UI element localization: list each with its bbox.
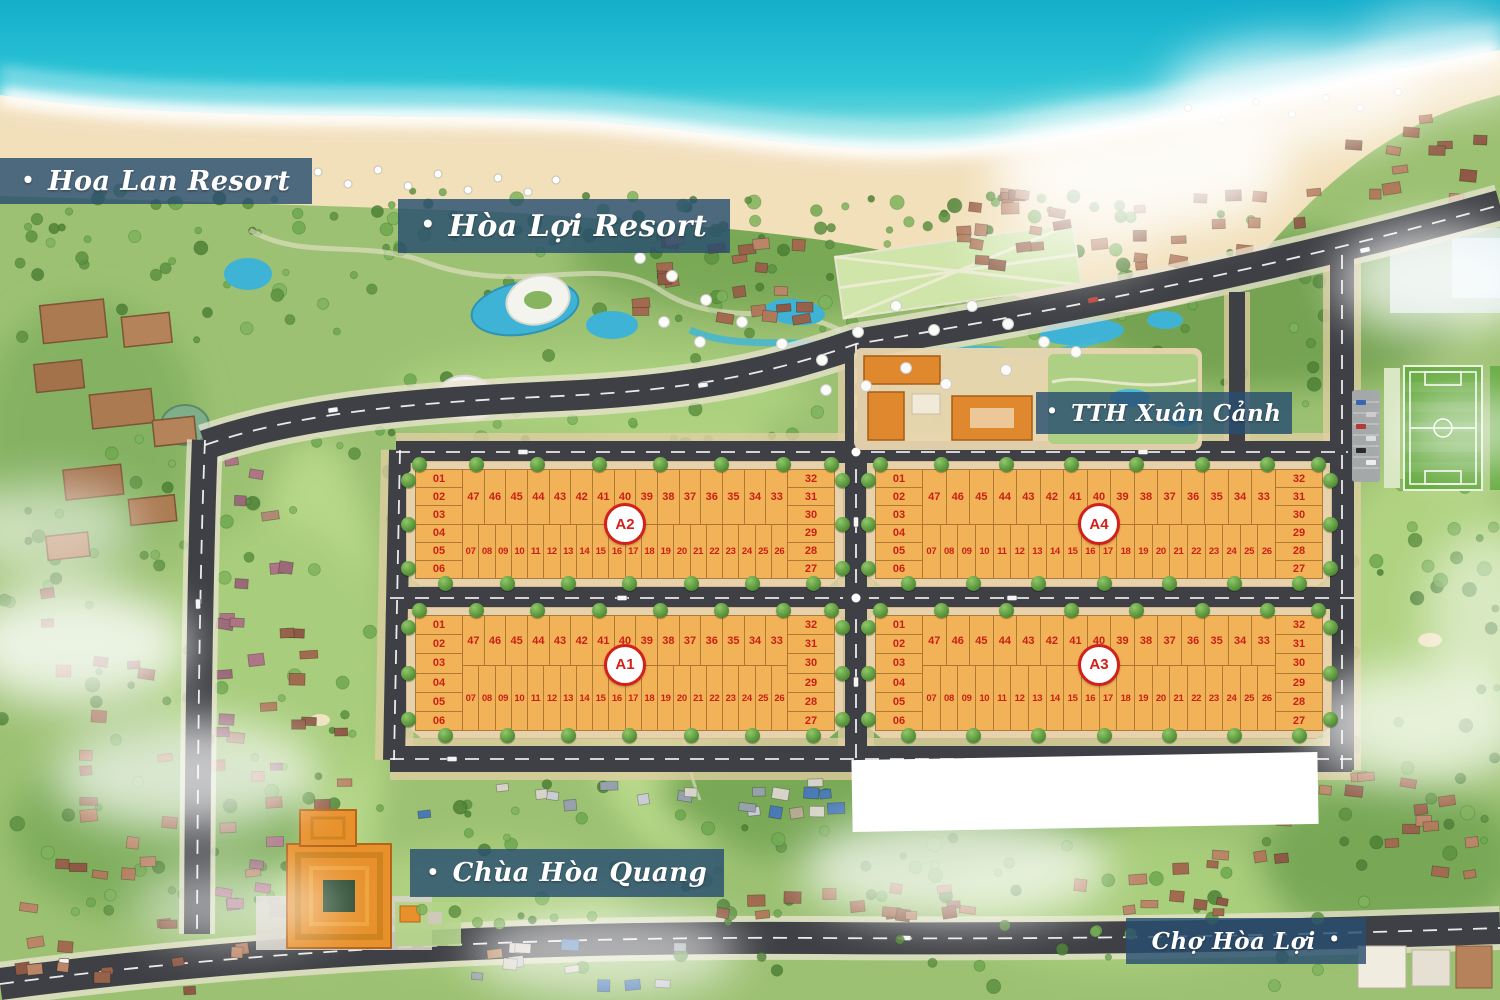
- lot-number: 04: [893, 677, 905, 689]
- lot-A2-34: 34: [745, 470, 767, 524]
- block-a4: 0102030405064746454443424140393837363534…: [866, 461, 1332, 587]
- lot-number: 47: [928, 635, 940, 647]
- lot-number: 03: [433, 509, 445, 521]
- lot-A2-04: 04: [416, 525, 462, 543]
- tree-icon: [1323, 561, 1338, 576]
- lot-number: 40: [619, 491, 631, 503]
- lot-A4-46: 46: [947, 470, 971, 524]
- lot-number: 29: [805, 527, 817, 539]
- lot-number: 39: [1116, 491, 1128, 503]
- tree-icon: [401, 473, 416, 488]
- lot-A2-22: 22: [707, 525, 723, 578]
- lot-A3-01: 01: [876, 616, 922, 635]
- lot-A2-03: 03: [416, 506, 462, 524]
- tree-icon: [1323, 712, 1338, 727]
- tree-icon: [412, 457, 427, 472]
- lot-number: 27: [1293, 563, 1305, 575]
- lot-number: 26: [1262, 546, 1272, 557]
- lot-A1-24: 24: [739, 666, 755, 730]
- lot-number: 18: [1121, 546, 1131, 557]
- lot-number: 17: [628, 546, 638, 557]
- tree-icon: [1311, 457, 1326, 472]
- banner-cho-hoa-loi: Chợ Hòa Lợi •: [1126, 918, 1366, 964]
- lot-A3-08: 08: [941, 666, 959, 730]
- lot-number: 23: [1209, 693, 1219, 704]
- lot-A3-20: 20: [1153, 666, 1171, 730]
- lot-number: 35: [727, 635, 739, 647]
- lot-number: 21: [693, 546, 703, 557]
- tree-icon: [684, 728, 699, 743]
- lot-number: 30: [805, 657, 817, 669]
- lot-number: 08: [482, 693, 492, 704]
- lot-A2-35: 35: [723, 470, 745, 524]
- lot-number: 43: [1022, 635, 1034, 647]
- lot-A3-03: 03: [876, 654, 922, 673]
- lot-A4-20: 20: [1153, 525, 1171, 578]
- lot-number: 11: [531, 693, 540, 704]
- lot-number: 18: [644, 546, 654, 557]
- banner-hoa-loi-resort: • Hòa Lợi Resort: [398, 199, 730, 253]
- tree-icon: [653, 603, 668, 618]
- lot-A3-24: 24: [1223, 666, 1241, 730]
- lot-A3-02: 02: [876, 635, 922, 654]
- lot-number: 38: [662, 491, 674, 503]
- lot-number: 34: [1234, 491, 1246, 503]
- lot-number: 09: [498, 693, 508, 704]
- lot-number: 09: [498, 546, 508, 557]
- lot-A4-21: 21: [1170, 525, 1188, 578]
- lot-number: 15: [1068, 693, 1078, 704]
- lot-number: 43: [554, 635, 566, 647]
- lot-number: 33: [1258, 491, 1270, 503]
- lot-number: 16: [1085, 693, 1095, 704]
- lot-number: 32: [805, 619, 817, 631]
- lot-number: 41: [1069, 635, 1081, 647]
- lot-A1-06: 06: [416, 712, 462, 730]
- lot-number: 21: [693, 693, 703, 704]
- lot-A4-33: 33: [1252, 470, 1275, 524]
- block-a3: 0102030405064746454443424140393837363534…: [866, 607, 1332, 739]
- lot-number: 42: [1046, 491, 1058, 503]
- lot-A4-42: 42: [1041, 470, 1065, 524]
- lot-A1-34: 34: [745, 616, 767, 665]
- tree-icon: [1129, 457, 1144, 472]
- lot-number: 31: [1293, 491, 1305, 503]
- lot-A3-46: 46: [947, 616, 971, 665]
- lot-A4-01: 01: [876, 470, 922, 488]
- tree-icon: [714, 603, 729, 618]
- lot-A3-12: 12: [1011, 666, 1029, 730]
- lot-number: 32: [1293, 473, 1305, 485]
- lot-A3-30: 30: [1276, 654, 1322, 673]
- lot-number: 27: [805, 715, 817, 727]
- lot-number: 42: [1046, 635, 1058, 647]
- lot-number: 12: [547, 693, 557, 704]
- lot-number: 11: [997, 693, 1006, 704]
- lot-A1-45: 45: [506, 616, 528, 665]
- block-badge-a4: A4: [1078, 503, 1120, 545]
- lot-A3-04: 04: [876, 674, 922, 693]
- lot-number: 12: [1015, 546, 1025, 557]
- lot-number: 41: [1069, 491, 1081, 503]
- lot-A3-19: 19: [1135, 666, 1153, 730]
- lot-number: 02: [893, 491, 905, 503]
- lot-A4-28: 28: [1276, 543, 1322, 561]
- lot-number: 02: [433, 491, 445, 503]
- lot-A2-43: 43: [550, 470, 572, 524]
- banner-bullet: •: [1046, 402, 1058, 422]
- lot-A1-18: 18: [642, 666, 658, 730]
- lot-number: 29: [805, 677, 817, 689]
- lot-number: 01: [433, 473, 445, 485]
- lot-number: 19: [1138, 693, 1148, 704]
- lot-A4-44: 44: [994, 470, 1018, 524]
- lot-A1-14: 14: [577, 666, 593, 730]
- lot-number: 29: [1293, 527, 1305, 539]
- lot-A1-44: 44: [528, 616, 550, 665]
- lot-A2-29: 29: [788, 525, 834, 543]
- lot-number: 06: [893, 563, 905, 575]
- lot-number: 37: [1163, 635, 1175, 647]
- banner-text: Chợ Hòa Lợi: [1152, 928, 1316, 955]
- lot-A2-31: 31: [788, 488, 834, 506]
- tree-icon: [873, 603, 888, 618]
- lot-A3-36: 36: [1182, 616, 1206, 665]
- lot-number: 23: [726, 693, 736, 704]
- lot-number: 13: [1032, 546, 1042, 557]
- lot-number: 14: [579, 546, 589, 557]
- lot-A3-09: 09: [958, 666, 976, 730]
- block-badge-a3: A3: [1078, 644, 1120, 686]
- lot-A4-09: 09: [958, 525, 976, 578]
- tree-icon: [1097, 576, 1112, 591]
- banner-bullet: •: [421, 212, 436, 238]
- lot-A3-34: 34: [1229, 616, 1253, 665]
- lot-A1-02: 02: [416, 635, 462, 654]
- lot-number: 20: [677, 546, 687, 557]
- lot-A2-18: 18: [642, 525, 658, 578]
- tree-icon: [901, 728, 916, 743]
- lot-A2-07: 07: [463, 525, 479, 578]
- lot-A4-10: 10: [976, 525, 994, 578]
- lot-A2-28: 28: [788, 543, 834, 561]
- lot-number: 42: [576, 635, 588, 647]
- lot-A1-13: 13: [561, 666, 577, 730]
- lot-A4-37: 37: [1158, 470, 1182, 524]
- lot-number: 46: [952, 491, 964, 503]
- lot-number: 41: [597, 491, 609, 503]
- lot-number: 26: [774, 693, 784, 704]
- lot-number: 03: [893, 509, 905, 521]
- lot-A4-19: 19: [1135, 525, 1153, 578]
- lot-number: 25: [1244, 546, 1254, 557]
- lot-A2-23: 23: [723, 525, 739, 578]
- lot-A2-44: 44: [528, 470, 550, 524]
- lot-number: 44: [999, 635, 1011, 647]
- lot-A4-47: 47: [923, 470, 947, 524]
- lot-number: 40: [1093, 491, 1105, 503]
- tree-icon: [835, 473, 850, 488]
- lot-number: 30: [805, 509, 817, 521]
- lot-A4-18: 18: [1117, 525, 1135, 578]
- lot-number: 25: [758, 693, 768, 704]
- lot-number: 05: [893, 696, 905, 708]
- lot-number: 45: [975, 635, 987, 647]
- block-badge-a2: A2: [604, 503, 646, 545]
- lot-number: 43: [554, 491, 566, 503]
- lot-A4-34: 34: [1229, 470, 1253, 524]
- banner-text: Chùa Hòa Quang: [453, 858, 708, 888]
- tree-icon: [1064, 457, 1079, 472]
- lot-number: 13: [563, 546, 573, 557]
- tree-icon: [1323, 473, 1338, 488]
- lot-A1-01: 01: [416, 616, 462, 635]
- lot-number: 34: [749, 635, 761, 647]
- lot-A2-13: 13: [561, 525, 577, 578]
- lot-number: 07: [466, 546, 476, 557]
- lot-A1-09: 09: [496, 666, 512, 730]
- lot-number: 38: [1140, 635, 1152, 647]
- lot-number: 46: [489, 635, 501, 647]
- lot-A2-42: 42: [571, 470, 593, 524]
- lot-number: 19: [1138, 546, 1148, 557]
- lot-number: 37: [1163, 491, 1175, 503]
- lot-number: 10: [514, 693, 524, 704]
- lot-A3-21: 21: [1170, 666, 1188, 730]
- lot-A3-37: 37: [1158, 616, 1182, 665]
- lot-A4-08: 08: [941, 525, 959, 578]
- banner-hoa-lan-resort: • Hoa Lan Resort: [0, 158, 312, 204]
- lot-number: 10: [979, 693, 989, 704]
- lot-number: 44: [532, 491, 544, 503]
- lot-number: 06: [433, 563, 445, 575]
- lot-number: 19: [661, 546, 671, 557]
- tree-icon: [1162, 728, 1177, 743]
- lot-number: 24: [1227, 693, 1237, 704]
- lot-number: 15: [596, 546, 606, 557]
- lot-A2-14: 14: [577, 525, 593, 578]
- lot-A1-04: 04: [416, 674, 462, 693]
- tree-icon: [412, 603, 427, 618]
- lot-A2-09: 09: [496, 525, 512, 578]
- lot-A4-35: 35: [1205, 470, 1229, 524]
- lot-number: 01: [893, 619, 905, 631]
- lot-A2-38: 38: [658, 470, 680, 524]
- lot-number: 46: [489, 491, 501, 503]
- lot-A2-46: 46: [485, 470, 507, 524]
- lot-A1-28: 28: [788, 693, 834, 712]
- lot-number: 41: [597, 635, 609, 647]
- lot-number: 08: [482, 546, 492, 557]
- lot-A2-11: 11: [528, 525, 544, 578]
- lot-number: 22: [709, 546, 719, 557]
- lot-number: 23: [1209, 546, 1219, 557]
- lot-number: 11: [531, 546, 540, 557]
- lot-A2-20: 20: [674, 525, 690, 578]
- lot-A4-30: 30: [1276, 506, 1322, 524]
- lot-A3-05: 05: [876, 693, 922, 712]
- lot-number: 20: [677, 693, 687, 704]
- block-badge-a1: A1: [604, 644, 646, 686]
- lot-number: 38: [1140, 491, 1152, 503]
- lot-A1-21: 21: [691, 666, 707, 730]
- tree-icon: [835, 561, 850, 576]
- lot-A3-15: 15: [1064, 666, 1082, 730]
- tree-icon: [824, 457, 839, 472]
- lot-A4-02: 02: [876, 488, 922, 506]
- lot-number: 28: [805, 545, 817, 557]
- lot-A4-04: 04: [876, 525, 922, 543]
- lot-number: 16: [1085, 546, 1095, 557]
- lot-number: 13: [563, 693, 573, 704]
- lot-number: 05: [893, 545, 905, 557]
- tree-icon: [1129, 603, 1144, 618]
- lot-number: 14: [1050, 546, 1060, 557]
- lot-number: 03: [893, 657, 905, 669]
- lot-A1-30: 30: [788, 654, 834, 673]
- lot-A3-06: 06: [876, 712, 922, 730]
- lot-number: 16: [612, 693, 622, 704]
- lot-number: 39: [641, 635, 653, 647]
- lot-number: 02: [433, 638, 445, 650]
- lot-A1-31: 31: [788, 635, 834, 654]
- lot-A2-37: 37: [680, 470, 702, 524]
- lot-number: 39: [1116, 635, 1128, 647]
- lot-number: 03: [433, 657, 445, 669]
- master-plan-map: 0102030405064746454443424140393837363534…: [0, 0, 1500, 1000]
- block-a2: 0102030405064746454443424140393837363534…: [406, 461, 844, 587]
- market-buildings: [1358, 946, 1492, 988]
- banner-text: Hòa Lợi Resort: [449, 209, 708, 244]
- lot-A1-20: 20: [674, 666, 690, 730]
- tree-icon: [469, 603, 484, 618]
- lot-A4-32: 32: [1276, 470, 1322, 488]
- lot-A1-19: 19: [658, 666, 674, 730]
- lot-number: 45: [975, 491, 987, 503]
- banner-chua-hoa-quang: • Chùa Hòa Quang: [410, 849, 724, 897]
- lot-number: 20: [1156, 546, 1166, 557]
- lot-number: 04: [433, 677, 445, 689]
- lot-A1-10: 10: [512, 666, 528, 730]
- lot-number: 04: [893, 527, 905, 539]
- lot-number: 25: [1244, 693, 1254, 704]
- tree-icon: [835, 666, 850, 681]
- lot-A4-22: 22: [1188, 525, 1206, 578]
- lot-A4-26: 26: [1258, 525, 1275, 578]
- lot-number: 32: [805, 473, 817, 485]
- tree-icon: [873, 457, 888, 472]
- lot-number: 06: [893, 715, 905, 727]
- lot-number: 06: [433, 715, 445, 727]
- lot-number: 21: [1174, 693, 1184, 704]
- lot-number: 22: [709, 693, 719, 704]
- lot-A1-36: 36: [701, 616, 723, 665]
- tree-icon: [835, 712, 850, 727]
- lot-number: 07: [466, 693, 476, 704]
- lot-A1-12: 12: [544, 666, 560, 730]
- tree-icon: [592, 603, 607, 618]
- tree-icon: [401, 620, 416, 635]
- tree-icon: [530, 603, 545, 618]
- lot-number: 36: [1187, 491, 1199, 503]
- block-a1: 0102030405064746454443424140393837363534…: [406, 607, 844, 739]
- lot-number: 01: [433, 619, 445, 631]
- lot-A1-11: 11: [528, 666, 544, 730]
- lot-number: 10: [514, 546, 524, 557]
- lot-A4-11: 11: [994, 525, 1012, 578]
- lot-A3-28: 28: [1276, 693, 1322, 712]
- lot-A4-36: 36: [1182, 470, 1206, 524]
- tree-icon: [745, 728, 760, 743]
- lot-number: 24: [1227, 546, 1237, 557]
- lot-number: 08: [944, 546, 954, 557]
- lot-A3-26: 26: [1258, 666, 1275, 730]
- lot-number: 15: [596, 693, 606, 704]
- lot-A4-29: 29: [1276, 525, 1322, 543]
- lot-A1-47: 47: [463, 616, 485, 665]
- banner-text: TTH Xuân Cảnh: [1071, 400, 1282, 427]
- lot-number: 17: [1103, 693, 1113, 704]
- lot-number: 30: [1293, 509, 1305, 521]
- lot-A3-11: 11: [994, 666, 1012, 730]
- tree-icon: [530, 457, 545, 472]
- tree-icon: [776, 603, 791, 618]
- tree-icon: [1323, 517, 1338, 532]
- lot-number: 12: [547, 546, 557, 557]
- lot-A3-22: 22: [1188, 666, 1206, 730]
- lot-number: 33: [771, 491, 783, 503]
- lot-A1-22: 22: [707, 666, 723, 730]
- lot-number: 36: [1187, 635, 1199, 647]
- lot-number: 02: [893, 638, 905, 650]
- lot-number: 32: [1293, 619, 1305, 631]
- tree-icon: [561, 728, 576, 743]
- banner-tth-xuan-canh: • TTH Xuân Cảnh: [1036, 392, 1292, 434]
- lot-number: 31: [805, 491, 817, 503]
- tree-icon: [653, 457, 668, 472]
- lot-A1-33: 33: [766, 616, 787, 665]
- lot-number: 31: [1293, 638, 1305, 650]
- lot-A1-23: 23: [723, 666, 739, 730]
- lot-A3-44: 44: [994, 616, 1018, 665]
- lot-A1-38: 38: [658, 616, 680, 665]
- lot-number: 42: [576, 491, 588, 503]
- lot-number: 09: [962, 693, 972, 704]
- lot-number: 07: [926, 546, 936, 557]
- lot-A2-08: 08: [479, 525, 495, 578]
- lot-number: 20: [1156, 693, 1166, 704]
- lot-A3-18: 18: [1117, 666, 1135, 730]
- lot-number: 23: [726, 546, 736, 557]
- lot-A2-06: 06: [416, 561, 462, 578]
- lot-A1-32: 32: [788, 616, 834, 635]
- lot-A2-32: 32: [788, 470, 834, 488]
- tree-icon: [1260, 457, 1275, 472]
- lot-A3-14: 14: [1047, 666, 1065, 730]
- lot-number: 46: [952, 635, 964, 647]
- lot-A4-12: 12: [1011, 525, 1029, 578]
- tree-icon: [999, 457, 1014, 472]
- lot-number: 27: [1293, 715, 1305, 727]
- lot-A2-21: 21: [691, 525, 707, 578]
- lot-A1-26: 26: [772, 666, 787, 730]
- lot-number: 16: [612, 546, 622, 557]
- lot-A4-06: 06: [876, 561, 922, 578]
- tree-icon: [500, 576, 515, 591]
- lot-A2-33: 33: [766, 470, 787, 524]
- tree-icon: [776, 457, 791, 472]
- tree-icon: [714, 457, 729, 472]
